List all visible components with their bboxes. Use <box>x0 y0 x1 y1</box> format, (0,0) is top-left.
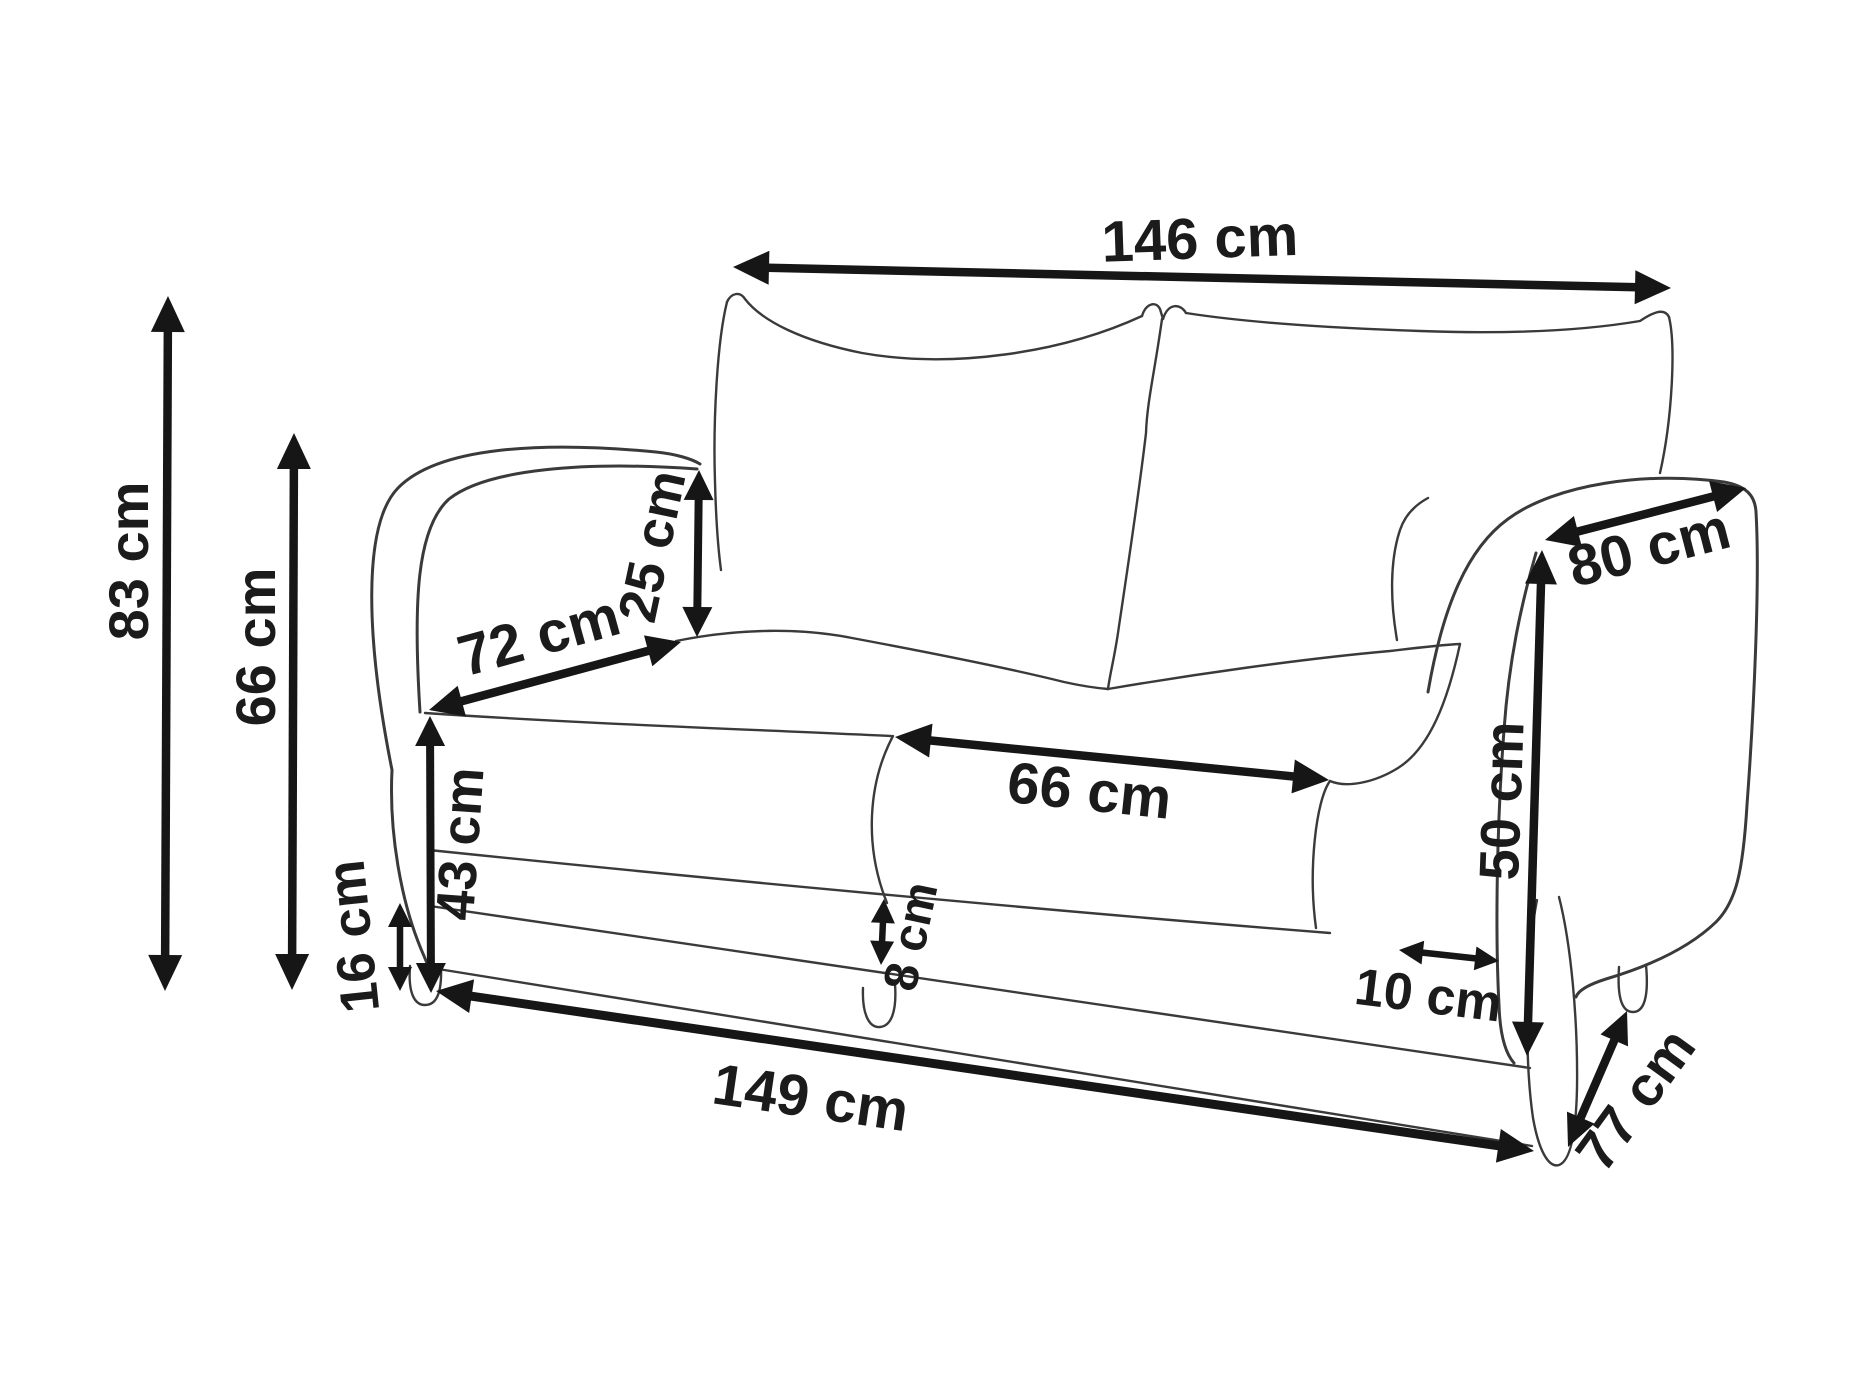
dim-arrow-66-left-head <box>277 433 311 469</box>
dimension-label-overall-bottom-width: 149 cm <box>709 1052 913 1145</box>
back-cushion-right-side-edge <box>1660 317 1672 473</box>
seat-back-seam-left <box>676 631 1108 689</box>
dim-arrow-146-head <box>733 251 769 285</box>
dim-arrow-10-head <box>1474 946 1499 970</box>
back-cushion-split-bump-right <box>1163 306 1186 319</box>
dim-arrow-66-seat-head <box>1291 760 1329 794</box>
dim-arrow-25-shaft <box>697 492 698 614</box>
dim-arrow-25-head <box>682 607 712 637</box>
dim-arrow-83-head <box>151 296 185 332</box>
dim-arrow-66-seat-head <box>895 724 933 758</box>
seat-back-seam-right <box>1108 644 1460 689</box>
dimension-label-seat-depth: 72 cm <box>451 583 627 690</box>
dim-arrow-50-head <box>1512 1022 1544 1056</box>
dim-arrow-66-left-shaft <box>292 460 294 963</box>
dim-arrow-16-head <box>388 967 412 991</box>
right-seat-cushion-front-corner <box>1313 781 1330 928</box>
back-cushion-left-top-edge <box>727 294 1142 359</box>
dim-arrow-146-head <box>1635 270 1671 304</box>
back-cushion-split-bump-left <box>1142 304 1163 319</box>
dimension-label-overall-top-width: 146 cm <box>1100 203 1299 275</box>
dim-arrow-149-shaft <box>463 995 1508 1147</box>
sofa-dimension-diagram-page: 146 cm 83 cm 66 cm 25 cm 72 cm 80 cm 50 … <box>0 0 1852 1389</box>
seat-cushion-gap <box>872 736 893 903</box>
dim-arrow-72-head <box>429 686 466 717</box>
dimension-label-arm-front-width: 10 cm <box>1352 958 1505 1034</box>
dim-arrow-66-left-head <box>275 954 309 990</box>
dimension-label-arm-height: 66 cm <box>224 568 287 727</box>
rear-right-leg <box>1619 965 1647 1012</box>
back-cushion-left-side-edge <box>715 302 728 570</box>
dim-arrow-43-head <box>415 716 445 746</box>
right-arm-inner-edge <box>1392 498 1428 640</box>
middle-front-leg <box>863 984 895 1027</box>
right-seat-cushion-right-edge <box>1330 644 1460 784</box>
sofa-outline <box>372 294 1758 1165</box>
back-cushion-right-top-edge <box>1186 312 1669 332</box>
dim-arrow-50-head <box>1525 550 1557 584</box>
dim-arrow-83-head <box>148 955 182 991</box>
dim-arrow-10-shaft <box>1417 952 1481 959</box>
dimension-label-base-height: 16 cm <box>315 857 391 1016</box>
dim-arrow-149-head <box>436 979 474 1013</box>
dim-arrow-10-head <box>1399 941 1424 965</box>
dimension-label-overall-height: 83 cm <box>97 482 160 641</box>
dimension-label-seat-front-height: 43 cm <box>425 765 496 922</box>
sofa-dimension-diagram: 146 cm 83 cm 66 cm 25 cm 72 cm 80 cm 50 … <box>0 0 1852 1389</box>
dimension-label-back-cushion-height: 25 cm <box>607 465 698 627</box>
left-seat-cushion-front-edge <box>425 713 891 736</box>
dimension-label-arm-front-height: 50 cm <box>1467 720 1536 881</box>
dim-arrow-83 <box>148 296 185 991</box>
back-cushion-split-line <box>1108 319 1162 689</box>
dimension-labels: 146 cm 83 cm 66 cm 25 cm 72 cm 80 cm 50 … <box>97 203 1737 1182</box>
dim-arrow-83-shaft <box>165 323 168 964</box>
